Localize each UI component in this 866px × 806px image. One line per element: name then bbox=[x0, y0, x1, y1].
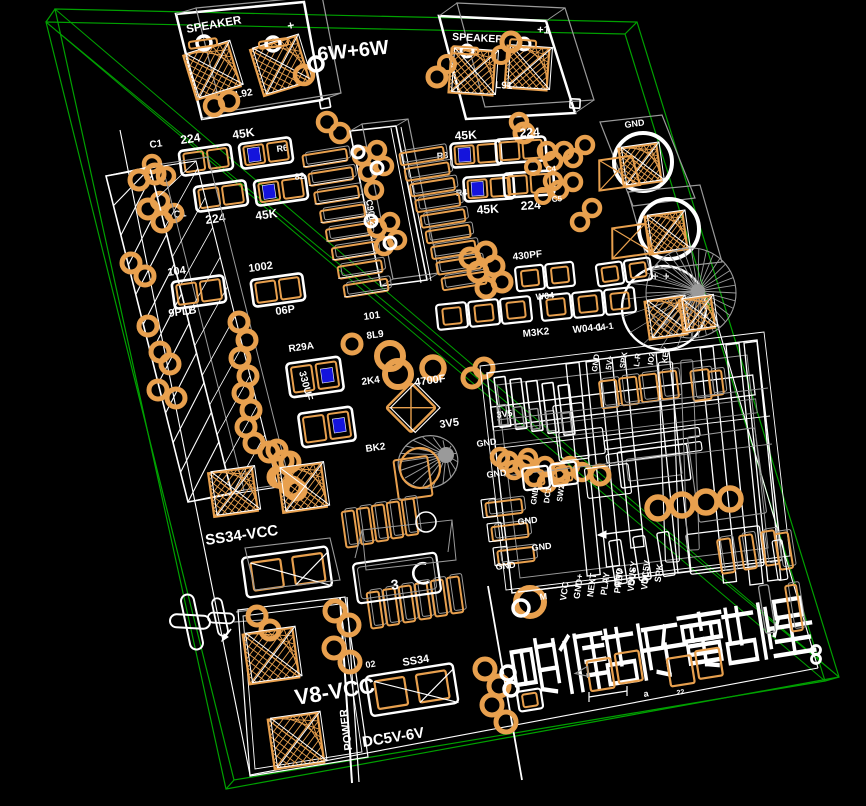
svg-text:224: 224 bbox=[179, 130, 201, 147]
svg-text:L-R: L-R bbox=[632, 353, 643, 368]
svg-text:C5: C5 bbox=[551, 194, 563, 204]
svg-text:C4: C4 bbox=[545, 164, 557, 174]
svg-text:82: 82 bbox=[294, 171, 305, 182]
svg-text:45K: 45K bbox=[476, 201, 499, 217]
svg-text:M: M bbox=[539, 591, 548, 602]
svg-text:IO2: IO2 bbox=[646, 351, 657, 366]
svg-text:+1: +1 bbox=[537, 24, 550, 37]
svg-text:45K: 45K bbox=[454, 127, 477, 143]
svg-text:L91: L91 bbox=[495, 80, 513, 92]
svg-text:22: 22 bbox=[676, 689, 685, 697]
svg-text:C1: C1 bbox=[149, 138, 164, 151]
svg-text:02: 02 bbox=[365, 659, 376, 670]
